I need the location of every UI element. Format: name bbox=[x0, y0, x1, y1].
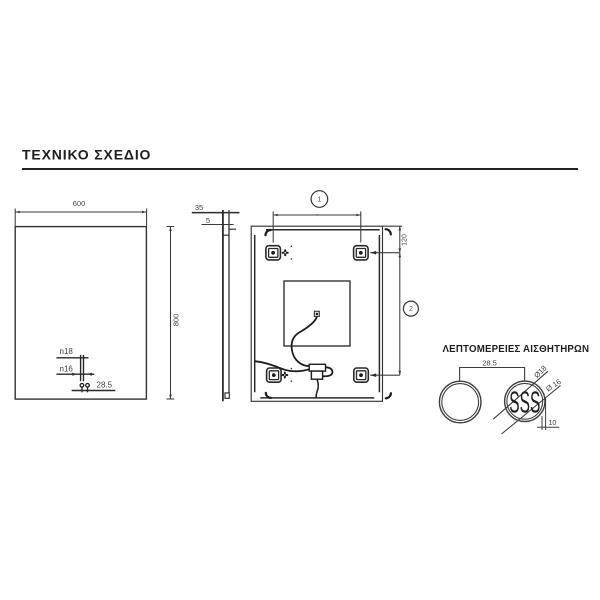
svg-text:28.5: 28.5 bbox=[97, 380, 113, 389]
svg-text:5: 5 bbox=[206, 216, 210, 225]
svg-text:28.5: 28.5 bbox=[482, 358, 497, 367]
svg-text:2: 2 bbox=[409, 306, 413, 313]
svg-text:ΛΕΠΤΟΜΕΡΕΙΕΣ ΑΙΣΘΗΤΗΡΩΝ: ΛΕΠΤΟΜΕΡΕΙΕΣ ΑΙΣΘΗΤΗΡΩΝ bbox=[443, 344, 590, 355]
svg-text:n16: n16 bbox=[60, 365, 74, 374]
svg-text:35: 35 bbox=[195, 203, 203, 212]
svg-text:600: 600 bbox=[73, 199, 86, 208]
svg-text:n18: n18 bbox=[60, 347, 74, 356]
svg-text:ΤΕΧΝΙΚΟ ΣΧΕΔΙΟ: ΤΕΧΝΙΚΟ ΣΧΕΔΙΟ bbox=[22, 147, 151, 163]
svg-text:10: 10 bbox=[549, 420, 557, 427]
svg-text:120: 120 bbox=[402, 234, 409, 246]
svg-text:800: 800 bbox=[172, 314, 181, 327]
svg-text:1: 1 bbox=[317, 197, 321, 204]
svg-text:SSS: SSS bbox=[509, 386, 540, 420]
